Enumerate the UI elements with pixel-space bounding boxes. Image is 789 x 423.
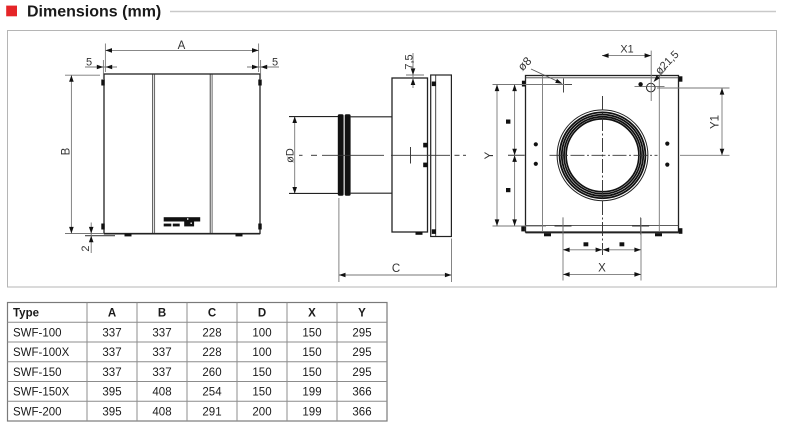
svg-text:366: 366 bbox=[352, 387, 371, 399]
svg-text:337: 337 bbox=[152, 367, 171, 379]
svg-text:Type: Type bbox=[13, 308, 39, 320]
svg-text:150: 150 bbox=[252, 367, 271, 379]
svg-text:337: 337 bbox=[102, 367, 121, 379]
svg-text:200: 200 bbox=[252, 407, 271, 419]
svg-text:295: 295 bbox=[352, 347, 371, 359]
svg-text:199: 199 bbox=[302, 387, 321, 399]
svg-text:Dimensions (mm): Dimensions (mm) bbox=[27, 3, 161, 20]
svg-text:228: 228 bbox=[202, 347, 221, 359]
svg-text:150: 150 bbox=[252, 387, 271, 399]
svg-text:X: X bbox=[598, 263, 606, 275]
svg-text:295: 295 bbox=[352, 367, 371, 379]
svg-text:Y: Y bbox=[484, 151, 496, 159]
svg-text:B: B bbox=[158, 308, 166, 320]
svg-text:100: 100 bbox=[252, 347, 271, 359]
svg-text:199: 199 bbox=[302, 407, 321, 419]
svg-text:2: 2 bbox=[80, 245, 92, 251]
svg-text:150: 150 bbox=[302, 327, 321, 339]
svg-text:SWF-100X: SWF-100X bbox=[13, 347, 70, 359]
svg-text:337: 337 bbox=[152, 327, 171, 339]
svg-text:øD: øD bbox=[285, 148, 297, 163]
svg-text:C: C bbox=[392, 263, 400, 275]
svg-text:337: 337 bbox=[102, 327, 121, 339]
svg-text:228: 228 bbox=[202, 327, 221, 339]
svg-text:D: D bbox=[258, 308, 266, 320]
svg-text:408: 408 bbox=[152, 407, 171, 419]
svg-text:X: X bbox=[308, 308, 316, 320]
svg-text:395: 395 bbox=[102, 387, 121, 399]
svg-text:150: 150 bbox=[302, 347, 321, 359]
svg-text:291: 291 bbox=[202, 407, 221, 419]
svg-text:X1: X1 bbox=[620, 44, 633, 56]
svg-text:SWF-200: SWF-200 bbox=[13, 407, 62, 419]
svg-text:337: 337 bbox=[152, 347, 171, 359]
svg-text:7,5: 7,5 bbox=[404, 54, 416, 69]
svg-text:337: 337 bbox=[102, 347, 121, 359]
svg-text:C: C bbox=[208, 308, 216, 320]
svg-text:SWF-100: SWF-100 bbox=[13, 327, 62, 339]
svg-text:395: 395 bbox=[102, 407, 121, 419]
svg-text:B: B bbox=[61, 147, 73, 155]
svg-text:Y: Y bbox=[358, 308, 366, 320]
svg-text:100: 100 bbox=[252, 327, 271, 339]
svg-text:295: 295 bbox=[352, 327, 371, 339]
svg-text:A: A bbox=[108, 308, 116, 320]
svg-text:260: 260 bbox=[202, 367, 221, 379]
svg-text:254: 254 bbox=[202, 387, 222, 399]
svg-text:408: 408 bbox=[152, 387, 171, 399]
svg-text:A: A bbox=[178, 40, 186, 52]
svg-text:SWF-150: SWF-150 bbox=[13, 367, 62, 379]
svg-text:5: 5 bbox=[272, 57, 278, 69]
svg-text:SWF-150X: SWF-150X bbox=[13, 387, 70, 399]
svg-text:Y1: Y1 bbox=[710, 115, 722, 129]
svg-text:366: 366 bbox=[352, 407, 371, 419]
svg-text:150: 150 bbox=[302, 367, 321, 379]
svg-text:5: 5 bbox=[86, 57, 92, 69]
